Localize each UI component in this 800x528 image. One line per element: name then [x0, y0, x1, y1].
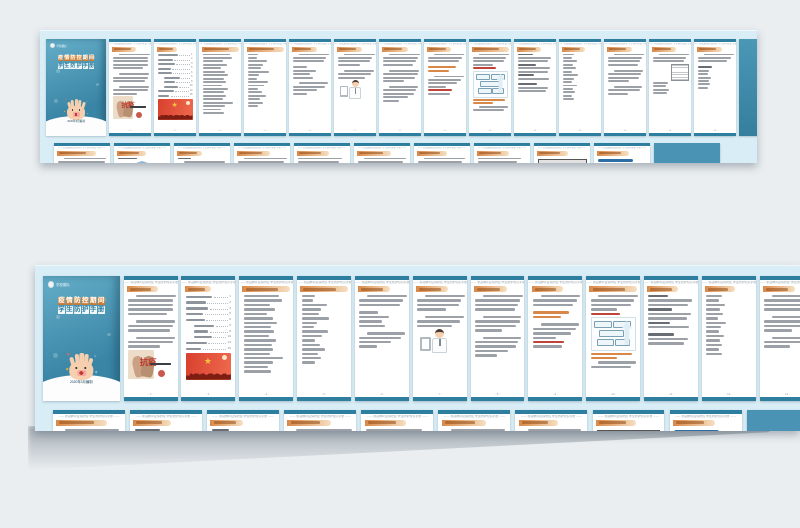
- text-line: [518, 54, 533, 56]
- text-line: [518, 57, 552, 59]
- title-char: 期: [90, 297, 97, 305]
- text-line: [244, 366, 268, 368]
- section-header-text-smudge: [609, 48, 626, 50]
- booklet-page-back-text-4: —— 新冠肺炎疫情防控 学生防护知识手册 ——- 5 -: [361, 410, 433, 431]
- toc-page-number: 6: [191, 76, 192, 78]
- toc-entry-title-line: [186, 348, 201, 350]
- text-line: [338, 77, 365, 79]
- section-header-text-smudge: [239, 152, 262, 154]
- text-line: [293, 77, 313, 79]
- text-line: [299, 82, 328, 84]
- page-bottom-band: [379, 133, 421, 136]
- page-body: [114, 157, 170, 163]
- text-line: [648, 295, 668, 297]
- text-line: [244, 158, 287, 160]
- toc-entry: 6: [158, 72, 193, 74]
- page-top-band: [469, 39, 511, 42]
- booklet-page-foreword: —— 新冠肺炎疫情防控 学生防护知识手册 ——抗疫- 2 -: [124, 276, 178, 401]
- toc-entry: 6: [186, 324, 231, 327]
- cover-title-line2: 学生防护手册: [43, 306, 120, 314]
- page-top-band: [559, 39, 601, 42]
- logo-emblem-icon: [50, 43, 55, 48]
- sparkle-icon: [86, 100, 88, 102]
- toc-entry-title-line: [186, 313, 203, 315]
- text-line: [764, 329, 792, 331]
- section-header-bar: [300, 286, 348, 292]
- booklet-page-paragraph-page-1: —— 新冠肺炎疫情防控 学生防护知识手册 ——- 8 -: [471, 276, 525, 401]
- text-line: [428, 60, 460, 62]
- page-body: [244, 53, 286, 130]
- title-char: 生: [66, 306, 73, 314]
- text-line: [178, 158, 192, 160]
- page-top-band: [438, 410, 510, 414]
- text-line: [614, 86, 643, 88]
- toc-page-number: 15: [190, 94, 193, 96]
- text-line: [359, 320, 382, 322]
- flow-box: [480, 81, 500, 87]
- toc-page-number: 1: [229, 295, 231, 298]
- text-line: [244, 335, 269, 337]
- text-line: [434, 76, 464, 78]
- text-line: [764, 308, 800, 310]
- text-line: [648, 317, 687, 319]
- page-body: [514, 53, 556, 130]
- sparkle-icon: [67, 353, 70, 356]
- section-header-bar: [357, 151, 392, 156]
- section-header-bar: [210, 420, 243, 426]
- text-line: [113, 60, 148, 62]
- toc-page-number: 13: [228, 341, 231, 344]
- toc-entry-title-line: [158, 90, 174, 92]
- text-line: [706, 339, 720, 341]
- page-body: [760, 294, 800, 392]
- text-line: [203, 81, 227, 83]
- virus-decoration-icon: [54, 99, 58, 103]
- title-char: 生: [64, 63, 70, 69]
- page-top-band: [361, 410, 433, 414]
- text-line: [772, 337, 800, 339]
- virus-decoration-icon: [53, 353, 58, 358]
- text-line: [425, 295, 466, 297]
- section-header-bar: [112, 47, 136, 52]
- booklet-page-back-cover: hope: [747, 410, 800, 431]
- page-body: [54, 157, 110, 163]
- running-header: —— 新冠肺炎疫情防控 学生防护知识手册 ——: [702, 281, 756, 285]
- page-body: [207, 428, 279, 431]
- text-line: [653, 92, 667, 94]
- page-top-band: [54, 143, 110, 146]
- text-line: [698, 60, 727, 62]
- text-line: [706, 304, 725, 306]
- page-top-band: [604, 39, 646, 42]
- text-line: [128, 308, 173, 310]
- page-top-band: [294, 143, 350, 146]
- text-line: [648, 308, 671, 310]
- text-line: [563, 85, 577, 87]
- page-top-band: [424, 39, 466, 42]
- text-line: [302, 326, 315, 328]
- title-char: 防: [70, 55, 76, 61]
- text-line: [706, 326, 720, 328]
- page-number: - 7 -: [413, 392, 467, 396]
- title-char: 防: [74, 306, 81, 314]
- section-header-bar: [607, 47, 632, 52]
- text-line: [302, 313, 319, 315]
- text-line: [518, 74, 535, 76]
- booklet-page-back-text-6: —— 新冠肺炎疫情防控 学生防护知识手册 ——- 7 -: [515, 410, 587, 431]
- red-seal-icon: [136, 112, 142, 118]
- section-header-bar: [365, 420, 407, 426]
- school-logo: 学校徽标: [50, 43, 67, 48]
- page-bottom-band: [334, 133, 376, 136]
- text-line: [428, 86, 446, 88]
- toc-page-number: 15: [228, 347, 231, 350]
- running-header: —— 新冠肺炎疫情防控 学生防护知识手册 ——: [514, 43, 556, 46]
- text-line: [518, 90, 546, 92]
- page-top-band: [593, 410, 665, 414]
- text-line: [428, 82, 457, 84]
- page-top-band: [594, 143, 650, 146]
- text-line: [704, 54, 735, 56]
- page-body: 中国加油!: [594, 157, 650, 163]
- text-line: [383, 100, 400, 102]
- toc-entry: 1: [186, 295, 231, 298]
- booklet-page-cover: 学校徽标疫情防控期间学生防护手册2020年3月编制: [43, 276, 120, 401]
- virus-decoration-icon: [56, 315, 60, 319]
- toc-page-number: 2: [191, 58, 192, 60]
- text-line: [473, 60, 505, 62]
- title-char: 护: [82, 306, 89, 314]
- text-line: [518, 60, 549, 62]
- text-line: [248, 57, 257, 59]
- text-line: [389, 86, 418, 88]
- running-header: —— 新冠肺炎疫情防控 学生防护知识手册 ——: [355, 281, 409, 285]
- cover-title-line1: 疫情防控期间: [43, 297, 120, 305]
- text-line: [614, 54, 645, 56]
- text-line: [518, 67, 551, 69]
- toc-page-number: 1: [191, 54, 192, 56]
- running-header: —— 新冠肺炎疫情防控 学生防护知识手册 ——: [130, 415, 202, 419]
- text-line: [293, 86, 325, 88]
- running-header: —— 新冠肺炎疫情防控 学生防护知识手册 ——: [649, 43, 691, 46]
- page-body: [379, 53, 421, 130]
- text-line: [383, 60, 417, 62]
- figure-bluebar: [674, 430, 719, 431]
- text-line: [518, 71, 548, 73]
- toc-entry: 15: [158, 94, 193, 96]
- toc-entry-title-line: [158, 72, 173, 74]
- toc-entry-title-line: [186, 301, 206, 303]
- text-line: [563, 57, 573, 59]
- toc-dot-leader: [181, 77, 190, 79]
- section-header-bar: [56, 420, 106, 426]
- text-line: [478, 158, 521, 160]
- eye-icon: [85, 367, 87, 369]
- section-header-bar: [157, 47, 177, 52]
- section-header-text-smudge: [419, 152, 440, 154]
- clipboard-icon: [420, 337, 430, 351]
- text-line: [772, 316, 800, 318]
- cover-date-line: 2020年3月编制: [46, 119, 106, 123]
- text-line: [764, 325, 800, 327]
- page-body: 抗疫: [109, 53, 151, 130]
- section-header-bar: [477, 151, 509, 156]
- toc-dot-leader: [210, 307, 228, 309]
- page-bottom-band: [181, 397, 235, 401]
- page-top-band: [474, 143, 530, 146]
- text-line: [428, 93, 450, 95]
- page-number: - 6 -: [355, 392, 409, 396]
- page-body: [413, 294, 467, 392]
- toc-entry: 2: [186, 301, 231, 304]
- text-line: [563, 74, 578, 76]
- section-header-bar: [705, 286, 735, 292]
- page-bottom-band: [471, 397, 525, 401]
- toc-page-number: 8: [229, 330, 231, 333]
- text-line: [113, 77, 148, 79]
- toc-entry-title-line: [158, 63, 176, 65]
- page-body: [130, 428, 202, 431]
- text-line: [298, 158, 342, 160]
- text-line: [706, 299, 719, 301]
- booklet-page-back-text-7: —— 新冠肺炎疫情防控 学生防护知识手册 ——- 8 -: [474, 143, 530, 163]
- section-header-bar: [297, 151, 329, 156]
- page-top-band: [154, 39, 196, 42]
- text-line: [113, 67, 143, 69]
- toc-dot-leader: [213, 336, 226, 338]
- page-body: [534, 157, 590, 163]
- figure-doctor: [417, 329, 462, 357]
- page-body: [361, 428, 433, 431]
- text-line: [475, 304, 518, 306]
- booklet-page-subhead-list-page: —— 新冠肺炎疫情防控 学生防护知识手册 ——- 11 -: [644, 276, 698, 401]
- toc-page-number: 5: [191, 67, 192, 69]
- toc-dot-leader: [171, 95, 189, 97]
- figure-doctor: [338, 80, 373, 102]
- toc-entry: 8: [158, 81, 193, 83]
- page-body: [438, 428, 510, 431]
- text-line: [367, 295, 407, 297]
- booklet-page-back-text-3: —— 新冠肺炎疫情防控 学生防护知识手册 ——- 4 -: [234, 143, 290, 163]
- booklet-page-paragraph-page-3: —— 新冠肺炎疫情防控 学生防护知识手册 ——- 13 -: [604, 39, 646, 136]
- section-header-bar: [442, 420, 487, 426]
- page-number: - 5 -: [297, 392, 351, 396]
- page-body: [414, 157, 470, 163]
- pages-row-front: 学校徽标疫情防控期间学生防护手册2020年3月编制—— 新冠肺炎疫情防控 学生防…: [46, 39, 757, 136]
- text-line: [473, 64, 493, 66]
- text-line: [293, 73, 311, 75]
- text-line: [598, 295, 638, 297]
- text-line: [302, 348, 325, 350]
- page-body: [694, 53, 736, 130]
- text-line: [478, 161, 517, 163]
- text-line: [302, 335, 323, 337]
- page-top-band: [379, 39, 421, 42]
- page-top-band: [181, 276, 235, 280]
- page-top-band: [174, 143, 230, 146]
- figure-form: [597, 430, 660, 431]
- doctor-tie: [355, 88, 356, 94]
- section-header-text-smudge: [419, 288, 441, 291]
- section-header-bar: [763, 286, 795, 292]
- text-line: [358, 161, 403, 163]
- page-body: 1235668101315★: [181, 294, 235, 392]
- text-line: [244, 361, 273, 363]
- title-char: 间: [98, 297, 105, 305]
- section-header-bar: [382, 47, 408, 52]
- running-header: —— 新冠肺炎疫情防控 学生防护知识手册 ——: [354, 147, 410, 150]
- running-header: —— 新冠肺炎疫情防控 学生防护知识手册 ——: [670, 415, 742, 419]
- text-line: [417, 299, 461, 301]
- text-line: [113, 80, 146, 82]
- text-line: [473, 67, 496, 69]
- running-header: —— 新冠肺炎疫情防控 学生防护知识手册 ——: [413, 281, 467, 285]
- running-header: —— 新冠肺炎疫情防控 学生防护知识手册 ——: [515, 415, 587, 419]
- page-top-band: [760, 276, 800, 280]
- booklet-page-building-page: —— 新冠肺炎疫情防控 学生防护知识手册 ——- 2 -: [130, 410, 202, 431]
- section-header-text-smudge: [299, 152, 321, 154]
- toc-dot-leader: [172, 68, 190, 70]
- text-line: [359, 337, 400, 339]
- figure-form: [538, 159, 587, 163]
- mask-icon: [77, 370, 86, 376]
- section-header-bar: [202, 47, 239, 52]
- booklet-page-form-page: —— 新冠肺炎疫情防控 学生防护知识手册 ——- 9 -: [534, 143, 590, 163]
- page-top-band: [413, 276, 467, 280]
- page-top-band: [239, 276, 293, 280]
- page-body: [528, 294, 582, 392]
- page-bottom-band: [644, 397, 698, 401]
- page-top-band: [534, 143, 590, 146]
- text-line: [203, 54, 230, 56]
- text-line: [698, 83, 711, 85]
- title-char: 手: [90, 306, 97, 314]
- text-line: [425, 316, 464, 318]
- page-number: - 12 -: [702, 392, 756, 396]
- text-line: [244, 322, 277, 324]
- text-line: [648, 313, 690, 315]
- text-line: [563, 95, 573, 97]
- virus-decoration-icon: [56, 69, 60, 73]
- text-line: [383, 64, 414, 66]
- toc-dot-leader: [176, 81, 190, 83]
- booklet-page-back-text-1: —— 新冠肺炎疫情防控 学生防护知识手册 ——- 1 -: [53, 410, 125, 431]
- page-top-band: [199, 39, 241, 42]
- page-bottom-band: [355, 397, 409, 401]
- page-top-band: [528, 276, 582, 280]
- running-header: —— 新冠肺炎疫情防控 学生防护知识手册 ——: [414, 147, 470, 150]
- text-line: [772, 295, 800, 297]
- text-line: [302, 322, 317, 324]
- text-line: [293, 66, 308, 68]
- text-line: [653, 89, 669, 91]
- running-header: —— 新冠肺炎疫情防控 学生防护知识手册 ——: [474, 147, 530, 150]
- text-line: [135, 429, 160, 431]
- toc-entry-title-line: [186, 319, 205, 321]
- page-body: [199, 53, 241, 130]
- strip-cast-shadow: [28, 426, 770, 470]
- strip-1: 学校徽标疫情防控期间学生防护手册2020年3月编制—— 新冠肺炎疫情防控 学生防…: [40, 30, 757, 163]
- text-line: [518, 78, 550, 80]
- section-header-text-smudge: [136, 421, 161, 424]
- text-line: [563, 60, 578, 62]
- page-top-band: [297, 276, 351, 280]
- text-line: [248, 54, 259, 56]
- text-line: [424, 158, 465, 160]
- toc-entry: 3: [186, 307, 231, 310]
- page-top-band: [414, 143, 470, 146]
- text-line: [203, 60, 223, 62]
- text-line: [293, 70, 316, 72]
- running-header: —— 新冠肺炎疫情防控 学生防护知识手册 ——: [109, 43, 151, 46]
- page-top-band: [53, 410, 125, 414]
- text-line: [648, 333, 673, 335]
- page-body: [649, 53, 691, 130]
- text-line: [698, 66, 712, 68]
- text-line: [764, 345, 790, 347]
- page-bottom-band: [760, 397, 800, 401]
- booklet-page-back-text-5: —— 新冠肺炎疫情防控 学生防护知识手册 ——- 6 -: [438, 410, 510, 431]
- text-line: [475, 354, 497, 356]
- toc-entry-title-line: [194, 325, 215, 327]
- doctor-head: [435, 329, 444, 338]
- text-line: [706, 353, 721, 355]
- text-line: [203, 95, 226, 97]
- section-header-bar: [177, 151, 203, 156]
- text-line: [383, 93, 415, 95]
- text-line: [248, 74, 260, 76]
- school-logo: 学校徽标: [48, 281, 70, 287]
- toc-entry-title-line: [186, 307, 209, 309]
- section-header-text-smudge: [368, 421, 396, 424]
- text-line: [64, 158, 106, 160]
- title-char: 期: [83, 55, 89, 61]
- toc-dot-leader: [175, 90, 189, 92]
- gold-star-icon: ★: [204, 357, 212, 366]
- toc-entry-title-line: [164, 81, 175, 83]
- text-line: [533, 341, 565, 343]
- page-number: - 9 -: [528, 392, 582, 396]
- text-line: [203, 109, 222, 111]
- section-header-text-smudge: [119, 152, 139, 154]
- text-line: [541, 295, 581, 297]
- section-header-bar: [472, 47, 509, 52]
- page-body: [702, 294, 756, 392]
- text-line: [248, 60, 268, 62]
- mask-cross-icon: [75, 113, 76, 116]
- text-line: [359, 311, 378, 313]
- logo-text: 学校徽标: [56, 282, 69, 287]
- text-line: [244, 339, 276, 341]
- text-line: [533, 332, 571, 334]
- running-header: —— 新冠肺炎疫情防控 学生防护知识手册 ——: [694, 43, 736, 46]
- text-line: [136, 295, 177, 297]
- section-header-text-smudge: [479, 152, 501, 154]
- text-line: [203, 88, 228, 90]
- toc-page-number: 10: [190, 85, 193, 87]
- text-line: [244, 295, 279, 297]
- city-people-silhouette: [158, 113, 193, 120]
- running-header: —— 新冠肺炎疫情防控 学生防护知识手册 ——: [469, 43, 511, 46]
- section-header-text-smudge: [477, 288, 500, 291]
- running-header: —— 新冠肺炎疫情防控 学生防护知识手册 ——: [760, 281, 800, 285]
- figure-hands: 抗疫: [113, 96, 148, 119]
- page-bottom-band: [694, 133, 736, 136]
- section-header-text-smudge: [246, 288, 278, 291]
- building-pediment: [130, 161, 154, 163]
- page-bottom-band: [528, 397, 582, 401]
- booklet-page-flowchart-page: —— 新冠肺炎疫情防控 学生防护知识手册 ——- 10 -: [586, 276, 640, 401]
